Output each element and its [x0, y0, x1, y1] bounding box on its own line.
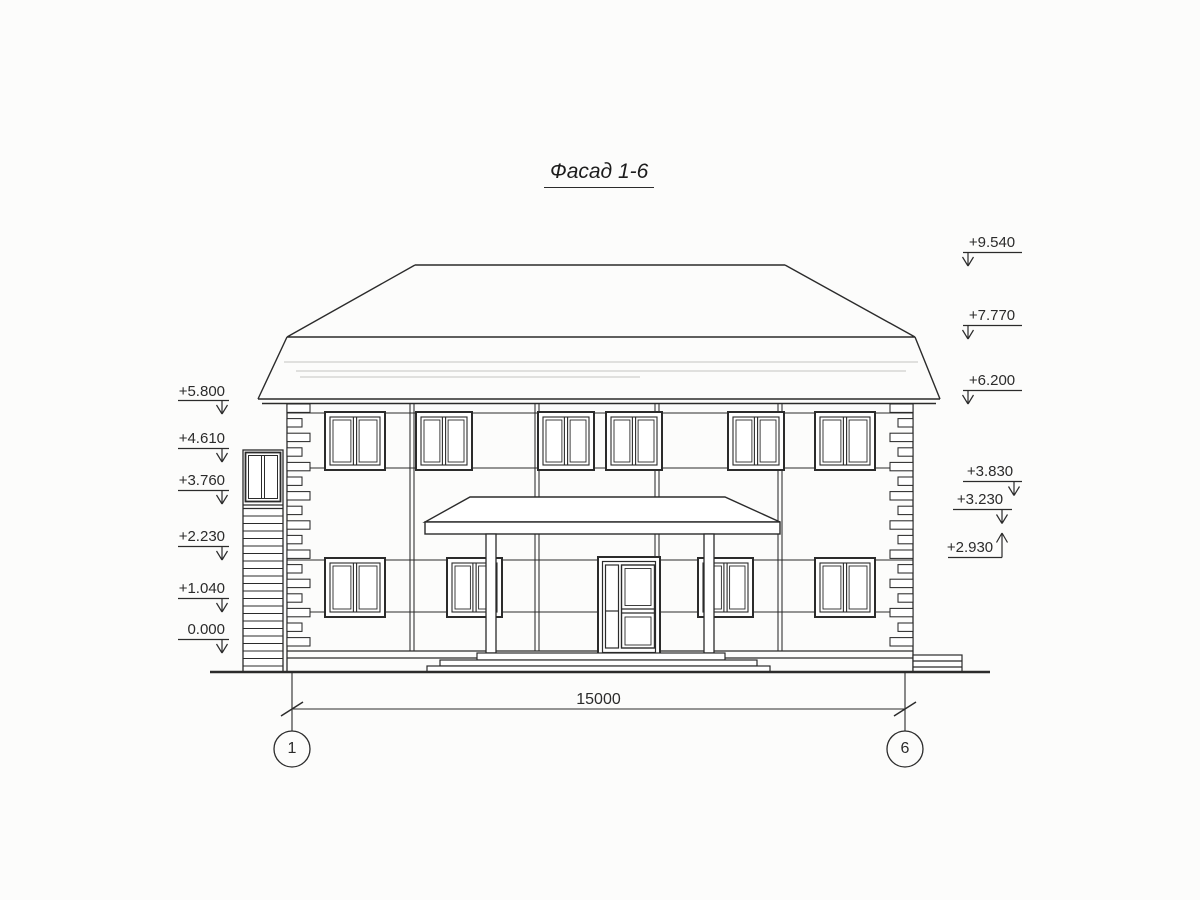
- canopy-column-left: [486, 534, 496, 653]
- facade-drawing-sheet: Фасад 1-6 +5.800 +4.610 +3.760 +2.230 +1…: [0, 0, 1200, 900]
- elevation-label: +6.200: [964, 373, 1020, 389]
- facade-linework: [0, 0, 1200, 900]
- right-side-stoop: [913, 655, 962, 672]
- elevation-label: 0.000: [167, 622, 225, 638]
- elevation-label: +1.040: [167, 581, 225, 597]
- roof-scan-streaks: [284, 362, 918, 377]
- elevation-label: +9.540: [964, 235, 1020, 251]
- axis-label-1: 1: [278, 740, 306, 760]
- corner-quoins-left: [287, 404, 310, 646]
- dimension-value: 15000: [556, 691, 641, 709]
- axis-label-6: 6: [891, 740, 919, 760]
- elevation-label: +3.230: [952, 492, 1008, 508]
- elevation-up-arrow: [997, 533, 1008, 558]
- entrance-door: [598, 557, 660, 655]
- porch-steps: [427, 653, 770, 672]
- hip-roof: [258, 265, 940, 404]
- canopy-column-right: [704, 534, 714, 653]
- elevation-label: +2.930: [942, 540, 998, 556]
- elevation-label: +3.830: [962, 464, 1018, 480]
- canopy-fascia: [425, 522, 780, 534]
- left-side-annex: [243, 450, 283, 672]
- elevation-label: +3.760: [167, 473, 225, 489]
- canopy-top-slab: [425, 497, 780, 522]
- corner-quoins-right: [890, 404, 913, 646]
- dimension-and-axes: [274, 672, 923, 767]
- elevation-label: +4.610: [167, 431, 225, 447]
- elevation-label: +7.770: [964, 308, 1020, 324]
- second-floor-windows: [325, 412, 875, 470]
- elevation-label: +2.230: [167, 529, 225, 545]
- drawing-title: Фасад 1-6: [544, 160, 654, 188]
- elevation-label: +5.800: [167, 384, 225, 400]
- annex-siding-lines: [243, 516, 283, 666]
